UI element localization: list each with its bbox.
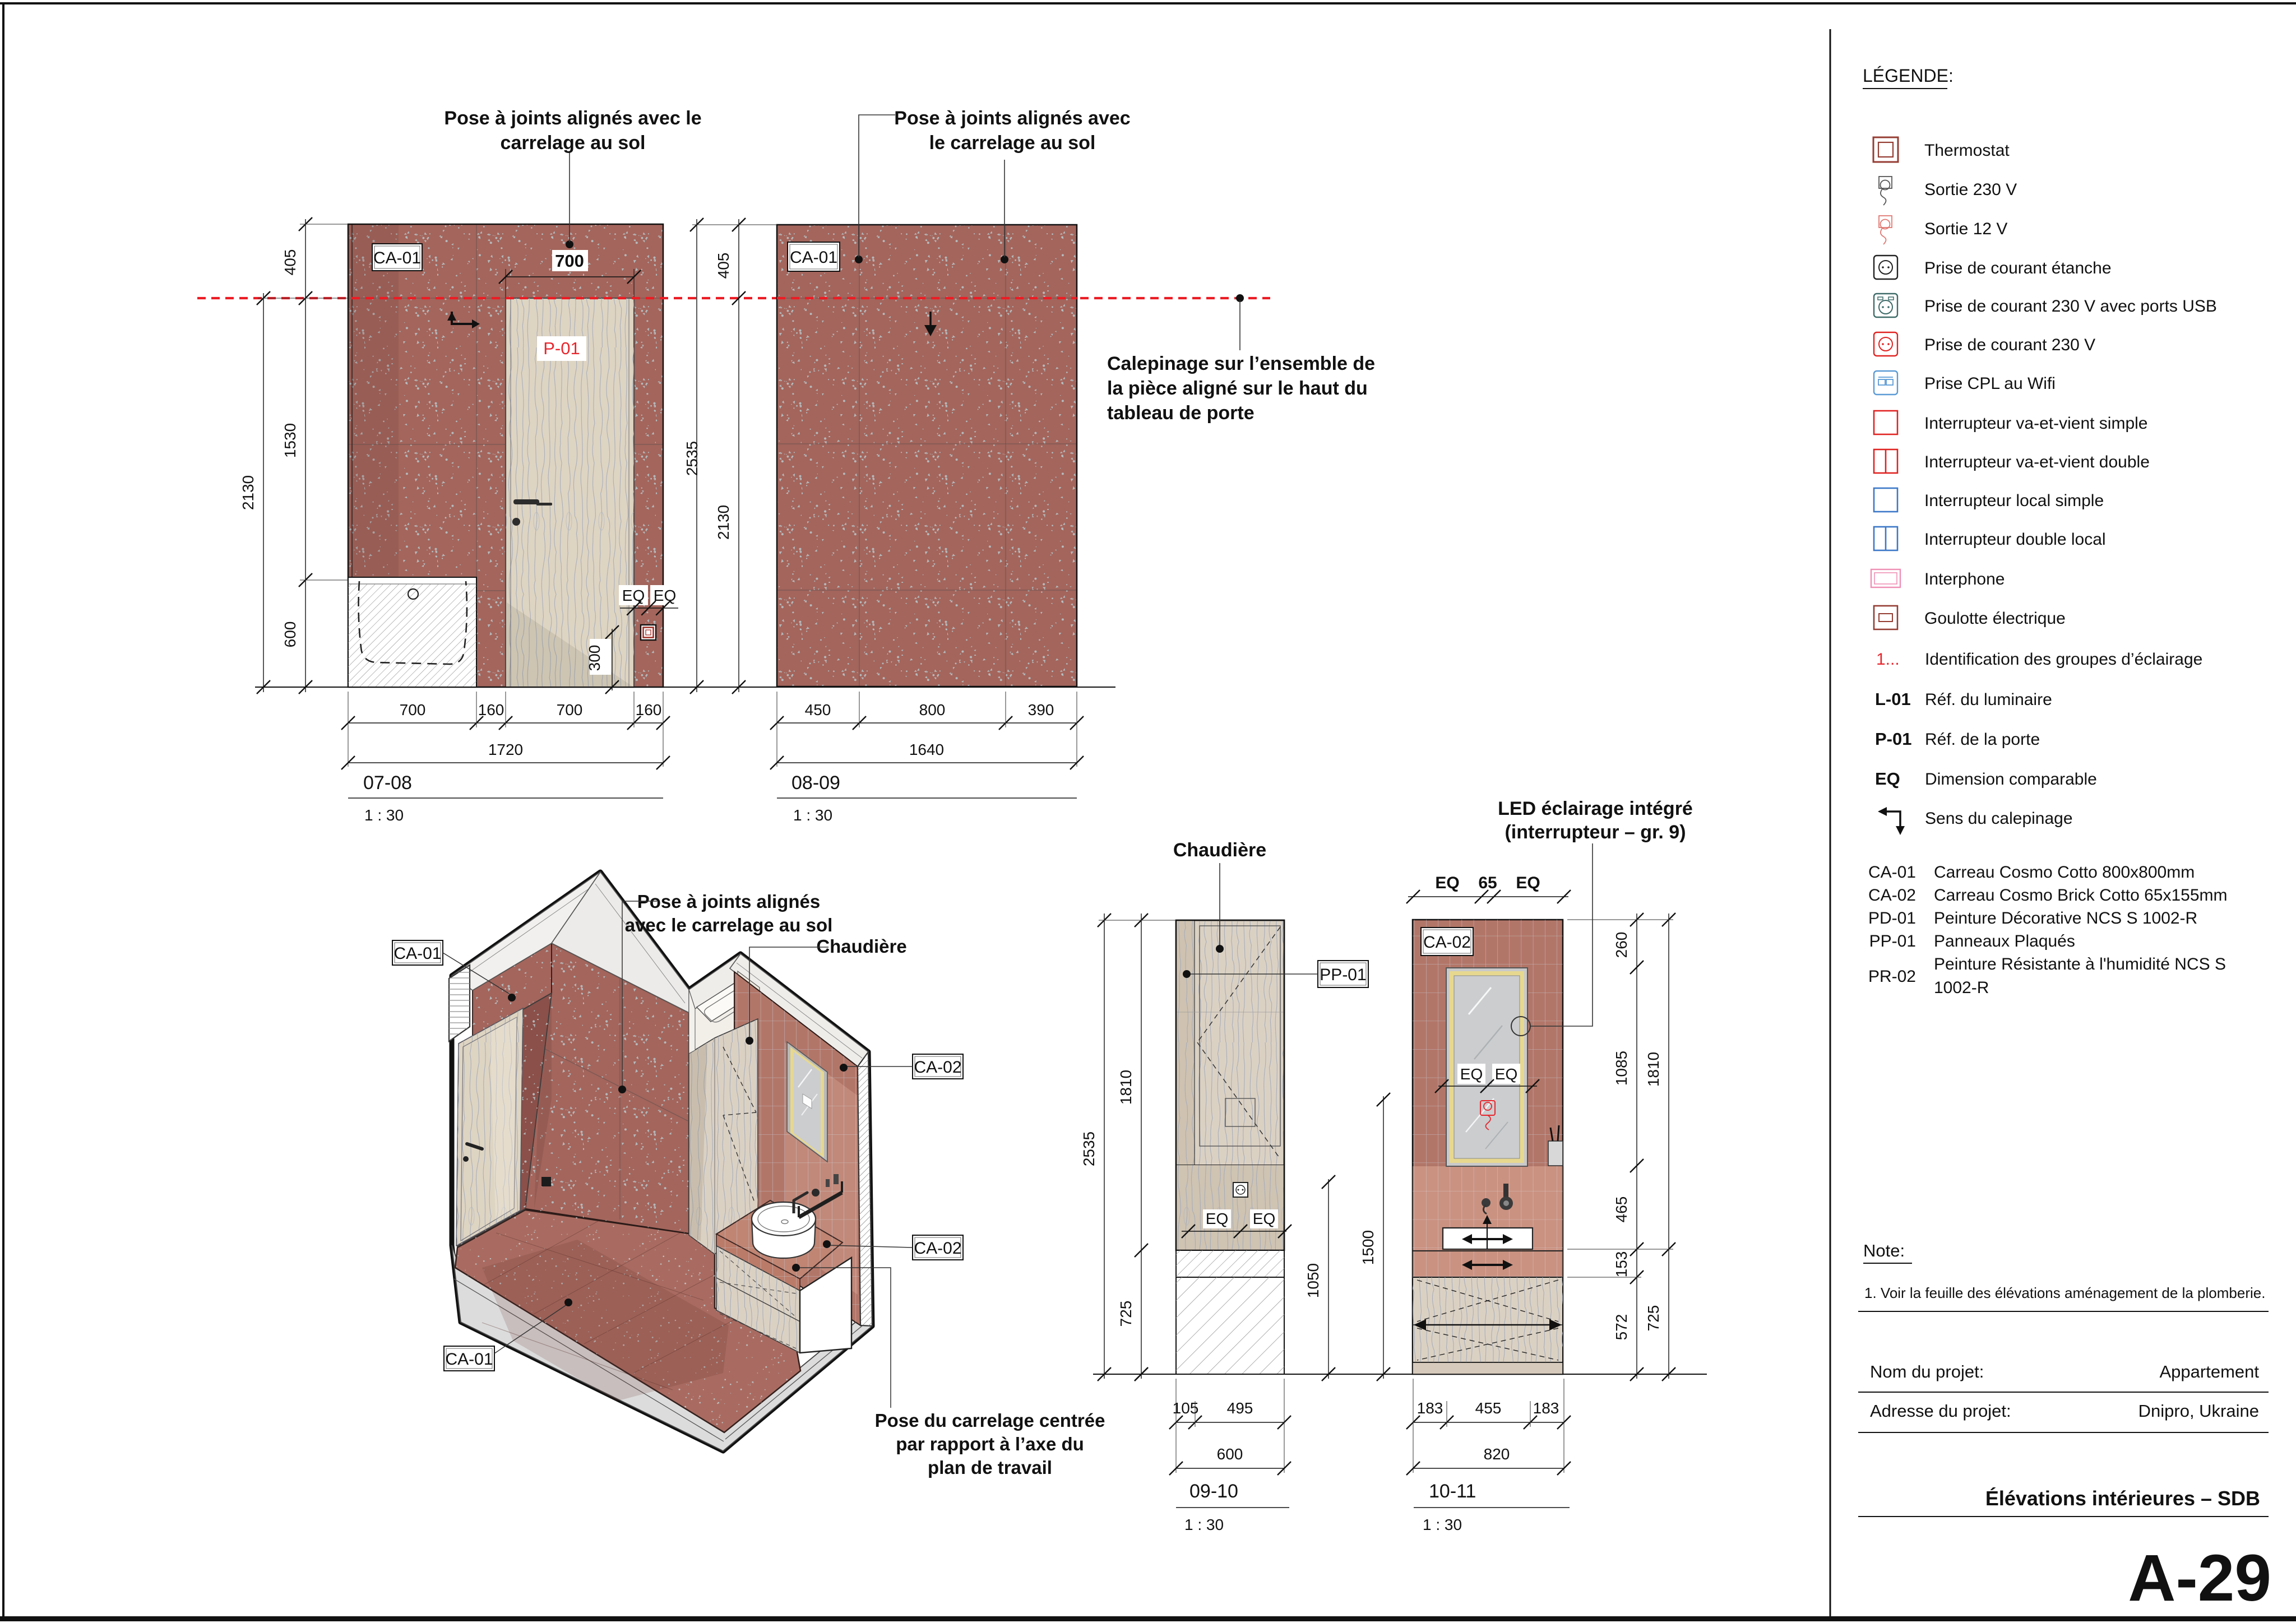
svg-text:800: 800	[919, 701, 946, 718]
svg-text:1050: 1050	[1304, 1263, 1322, 1298]
svg-text:1500: 1500	[1359, 1230, 1377, 1265]
svg-text:Sortie 12 V: Sortie 12 V	[1924, 220, 2007, 238]
svg-text:10-11: 10-11	[1429, 1481, 1476, 1502]
svg-text:1. Voir la feuille des élévati: 1. Voir la feuille des élévations aménag…	[1864, 1285, 2265, 1301]
svg-text:Interphone: Interphone	[1924, 570, 2005, 588]
svg-text:avec le carrelage au sol: avec le carrelage au sol	[625, 915, 833, 935]
svg-text:600: 600	[281, 622, 299, 648]
svg-text:Thermostat: Thermostat	[1924, 141, 2010, 160]
svg-text:Panneaux Plaqués: Panneaux Plaqués	[1934, 932, 2075, 950]
svg-text:CA-02: CA-02	[1868, 886, 1916, 905]
svg-text:09-10: 09-10	[1189, 1481, 1238, 1502]
svg-text:260: 260	[1613, 932, 1630, 958]
svg-text:725: 725	[1645, 1305, 1662, 1332]
svg-text:EQ: EQ	[654, 587, 676, 604]
svg-text:par rapport à l’axe du: par rapport à l’axe du	[896, 1434, 1084, 1454]
svg-text:2535: 2535	[683, 441, 701, 476]
svg-text:105: 105	[1173, 1399, 1199, 1417]
svg-text:700: 700	[400, 701, 426, 718]
svg-text:1...: 1...	[1876, 650, 1900, 669]
svg-text:Chaudière: Chaudière	[1173, 840, 1266, 861]
svg-text:EQ: EQ	[1495, 1065, 1517, 1083]
svg-text:EQ: EQ	[1516, 874, 1540, 892]
svg-text:Adresse du projet:: Adresse du projet:	[1870, 1401, 2011, 1421]
svg-text:1810: 1810	[1645, 1052, 1662, 1087]
svg-text:700: 700	[557, 701, 583, 718]
svg-text:2130: 2130	[715, 505, 732, 540]
svg-text:183: 183	[1533, 1399, 1559, 1417]
svg-text:07-08: 07-08	[363, 772, 412, 794]
svg-text:1530: 1530	[281, 423, 299, 458]
svg-text:CA-01: CA-01	[373, 249, 421, 267]
svg-text:390: 390	[1028, 701, 1054, 718]
svg-text:160: 160	[636, 701, 662, 718]
svg-text:CA-02: CA-02	[914, 1239, 961, 1258]
svg-text:Réf. du luminaire: Réf. du luminaire	[1925, 690, 2052, 709]
svg-text:A-29: A-29	[2128, 1541, 2271, 1615]
svg-text:Prise de courant 230 V avec po: Prise de courant 230 V avec ports USB	[1924, 297, 2217, 316]
svg-text:1 : 30: 1 : 30	[1184, 1516, 1224, 1533]
svg-text:EQ: EQ	[1253, 1210, 1275, 1227]
svg-text:Réf. de la porte: Réf. de la porte	[1925, 730, 2040, 749]
svg-text:455: 455	[1475, 1399, 1502, 1417]
svg-text:Sens du calepinage: Sens du calepinage	[1925, 809, 2073, 828]
svg-text:plan de travail: plan de travail	[928, 1457, 1052, 1478]
svg-text:1810: 1810	[1117, 1070, 1135, 1105]
svg-text:Nom du projet:: Nom du projet:	[1870, 1362, 1984, 1381]
svg-text:Peinture Décorative NCS S 1002: Peinture Décorative NCS S 1002-R	[1934, 909, 2197, 928]
svg-text:Pose à joints alignés avec le: Pose à joints alignés avec le	[444, 108, 701, 129]
svg-text:Dnipro, Ukraine: Dnipro, Ukraine	[2138, 1401, 2259, 1421]
svg-text:la pièce aligné sur le haut du: la pièce aligné sur le haut du	[1107, 378, 1368, 399]
svg-text:465: 465	[1613, 1197, 1630, 1223]
svg-text:1 : 30: 1 : 30	[1423, 1516, 1462, 1533]
svg-text:Goulotte électrique: Goulotte électrique	[1924, 609, 2066, 628]
svg-text:le carrelage au sol: le carrelage au sol	[929, 132, 1096, 154]
svg-text:Interrupteur va-et-vient doubl: Interrupteur va-et-vient double	[1924, 453, 2150, 471]
svg-text:450: 450	[805, 701, 831, 718]
svg-text:1085: 1085	[1613, 1051, 1630, 1086]
svg-text:EQ: EQ	[1206, 1210, 1228, 1227]
svg-text:CA-01: CA-01	[790, 248, 837, 267]
svg-text:P-01: P-01	[543, 338, 580, 358]
svg-text:Pose à joints alignés avec: Pose à joints alignés avec	[894, 108, 1130, 129]
svg-text:EQ: EQ	[1460, 1065, 1483, 1083]
svg-text:Chaudière: Chaudière	[816, 936, 906, 957]
svg-text:CA-02: CA-02	[1423, 933, 1471, 952]
svg-text:CA-01: CA-01	[394, 944, 441, 963]
svg-text:EQ: EQ	[1435, 874, 1459, 892]
svg-text:700: 700	[555, 251, 584, 271]
svg-text:405: 405	[715, 253, 732, 279]
svg-text:EQ: EQ	[1875, 769, 1900, 789]
svg-text:LÉGENDE:: LÉGENDE:	[1863, 66, 1954, 86]
svg-text:1 : 30: 1 : 30	[364, 806, 404, 824]
svg-text:(interrupteur – gr. 9): (interrupteur – gr. 9)	[1505, 822, 1686, 843]
svg-text:CA-01: CA-01	[1868, 863, 1916, 882]
svg-text:Peinture Résistante à l'humidi: Peinture Résistante à l'humidité NCS S	[1934, 955, 2226, 973]
svg-text:183: 183	[1417, 1399, 1443, 1417]
svg-text:Appartement: Appartement	[2160, 1362, 2260, 1381]
svg-text:572: 572	[1613, 1314, 1630, 1341]
svg-text:495: 495	[1227, 1399, 1253, 1417]
svg-text:725: 725	[1117, 1301, 1135, 1327]
svg-text:300: 300	[586, 645, 603, 671]
svg-text:153: 153	[1613, 1251, 1630, 1278]
svg-text:1002-R: 1002-R	[1934, 979, 1989, 997]
svg-text:tableau de porte: tableau de porte	[1107, 402, 1255, 424]
svg-text:Sortie 230 V: Sortie 230 V	[1924, 180, 2017, 199]
svg-text:Calepinage sur l’ensemble de: Calepinage sur l’ensemble de	[1107, 353, 1375, 374]
svg-text:2130: 2130	[239, 475, 257, 510]
svg-text:Carreau Cosmo Brick Cotto 65x1: Carreau Cosmo Brick Cotto 65x155mm	[1934, 886, 2228, 905]
svg-text:Prise de courant étanche: Prise de courant étanche	[1924, 259, 2112, 277]
svg-text:1640: 1640	[909, 741, 944, 758]
svg-text:P-01: P-01	[1875, 729, 1911, 749]
svg-text:Note:: Note:	[1863, 1241, 1905, 1260]
svg-text:Élévations intérieures – SDB: Élévations intérieures – SDB	[1985, 1487, 2260, 1510]
svg-text:L-01: L-01	[1875, 689, 1911, 709]
svg-text:Interrupteur va-et-vient simpl: Interrupteur va-et-vient simple	[1924, 414, 2148, 433]
svg-text:08-09: 08-09	[791, 772, 840, 794]
svg-text:1 : 30: 1 : 30	[793, 806, 832, 824]
svg-text:LED éclairage intégré: LED éclairage intégré	[1498, 798, 1693, 819]
svg-text:Prise CPL au Wifi: Prise CPL au Wifi	[1924, 374, 2056, 393]
svg-text:Interrupteur double local: Interrupteur double local	[1924, 530, 2106, 549]
svg-text:65: 65	[1478, 874, 1497, 892]
svg-text:405: 405	[281, 249, 299, 276]
svg-text:CA-01: CA-01	[445, 1350, 493, 1369]
svg-text:Prise de courant 230 V: Prise de courant 230 V	[1924, 336, 2095, 354]
svg-text:PR-02: PR-02	[1868, 967, 1916, 986]
svg-text:PP-01: PP-01	[1320, 966, 1366, 984]
svg-text:carrelage au sol: carrelage au sol	[501, 132, 646, 154]
svg-text:PP-01: PP-01	[1869, 932, 1916, 950]
svg-text:Identification des groupes d’é: Identification des groupes d’éclairage	[1925, 650, 2202, 669]
svg-text:Dimension comparable: Dimension comparable	[1925, 770, 2097, 789]
svg-text:820: 820	[1484, 1445, 1510, 1463]
svg-text:CA-02: CA-02	[914, 1058, 961, 1077]
svg-text:600: 600	[1217, 1445, 1243, 1463]
svg-text:Pose du carrelage centrée: Pose du carrelage centrée	[875, 1410, 1105, 1431]
svg-text:Interrupteur local simple: Interrupteur local simple	[1924, 491, 2104, 510]
svg-text:Carreau Cosmo Cotto 800x800mm: Carreau Cosmo Cotto 800x800mm	[1934, 863, 2195, 882]
svg-text:1720: 1720	[488, 741, 523, 758]
svg-text:2535: 2535	[1080, 1132, 1098, 1166]
svg-text:PD-01: PD-01	[1868, 909, 1916, 928]
svg-text:160: 160	[478, 701, 504, 718]
svg-text:Pose à joints alignés: Pose à joints alignés	[637, 891, 820, 912]
